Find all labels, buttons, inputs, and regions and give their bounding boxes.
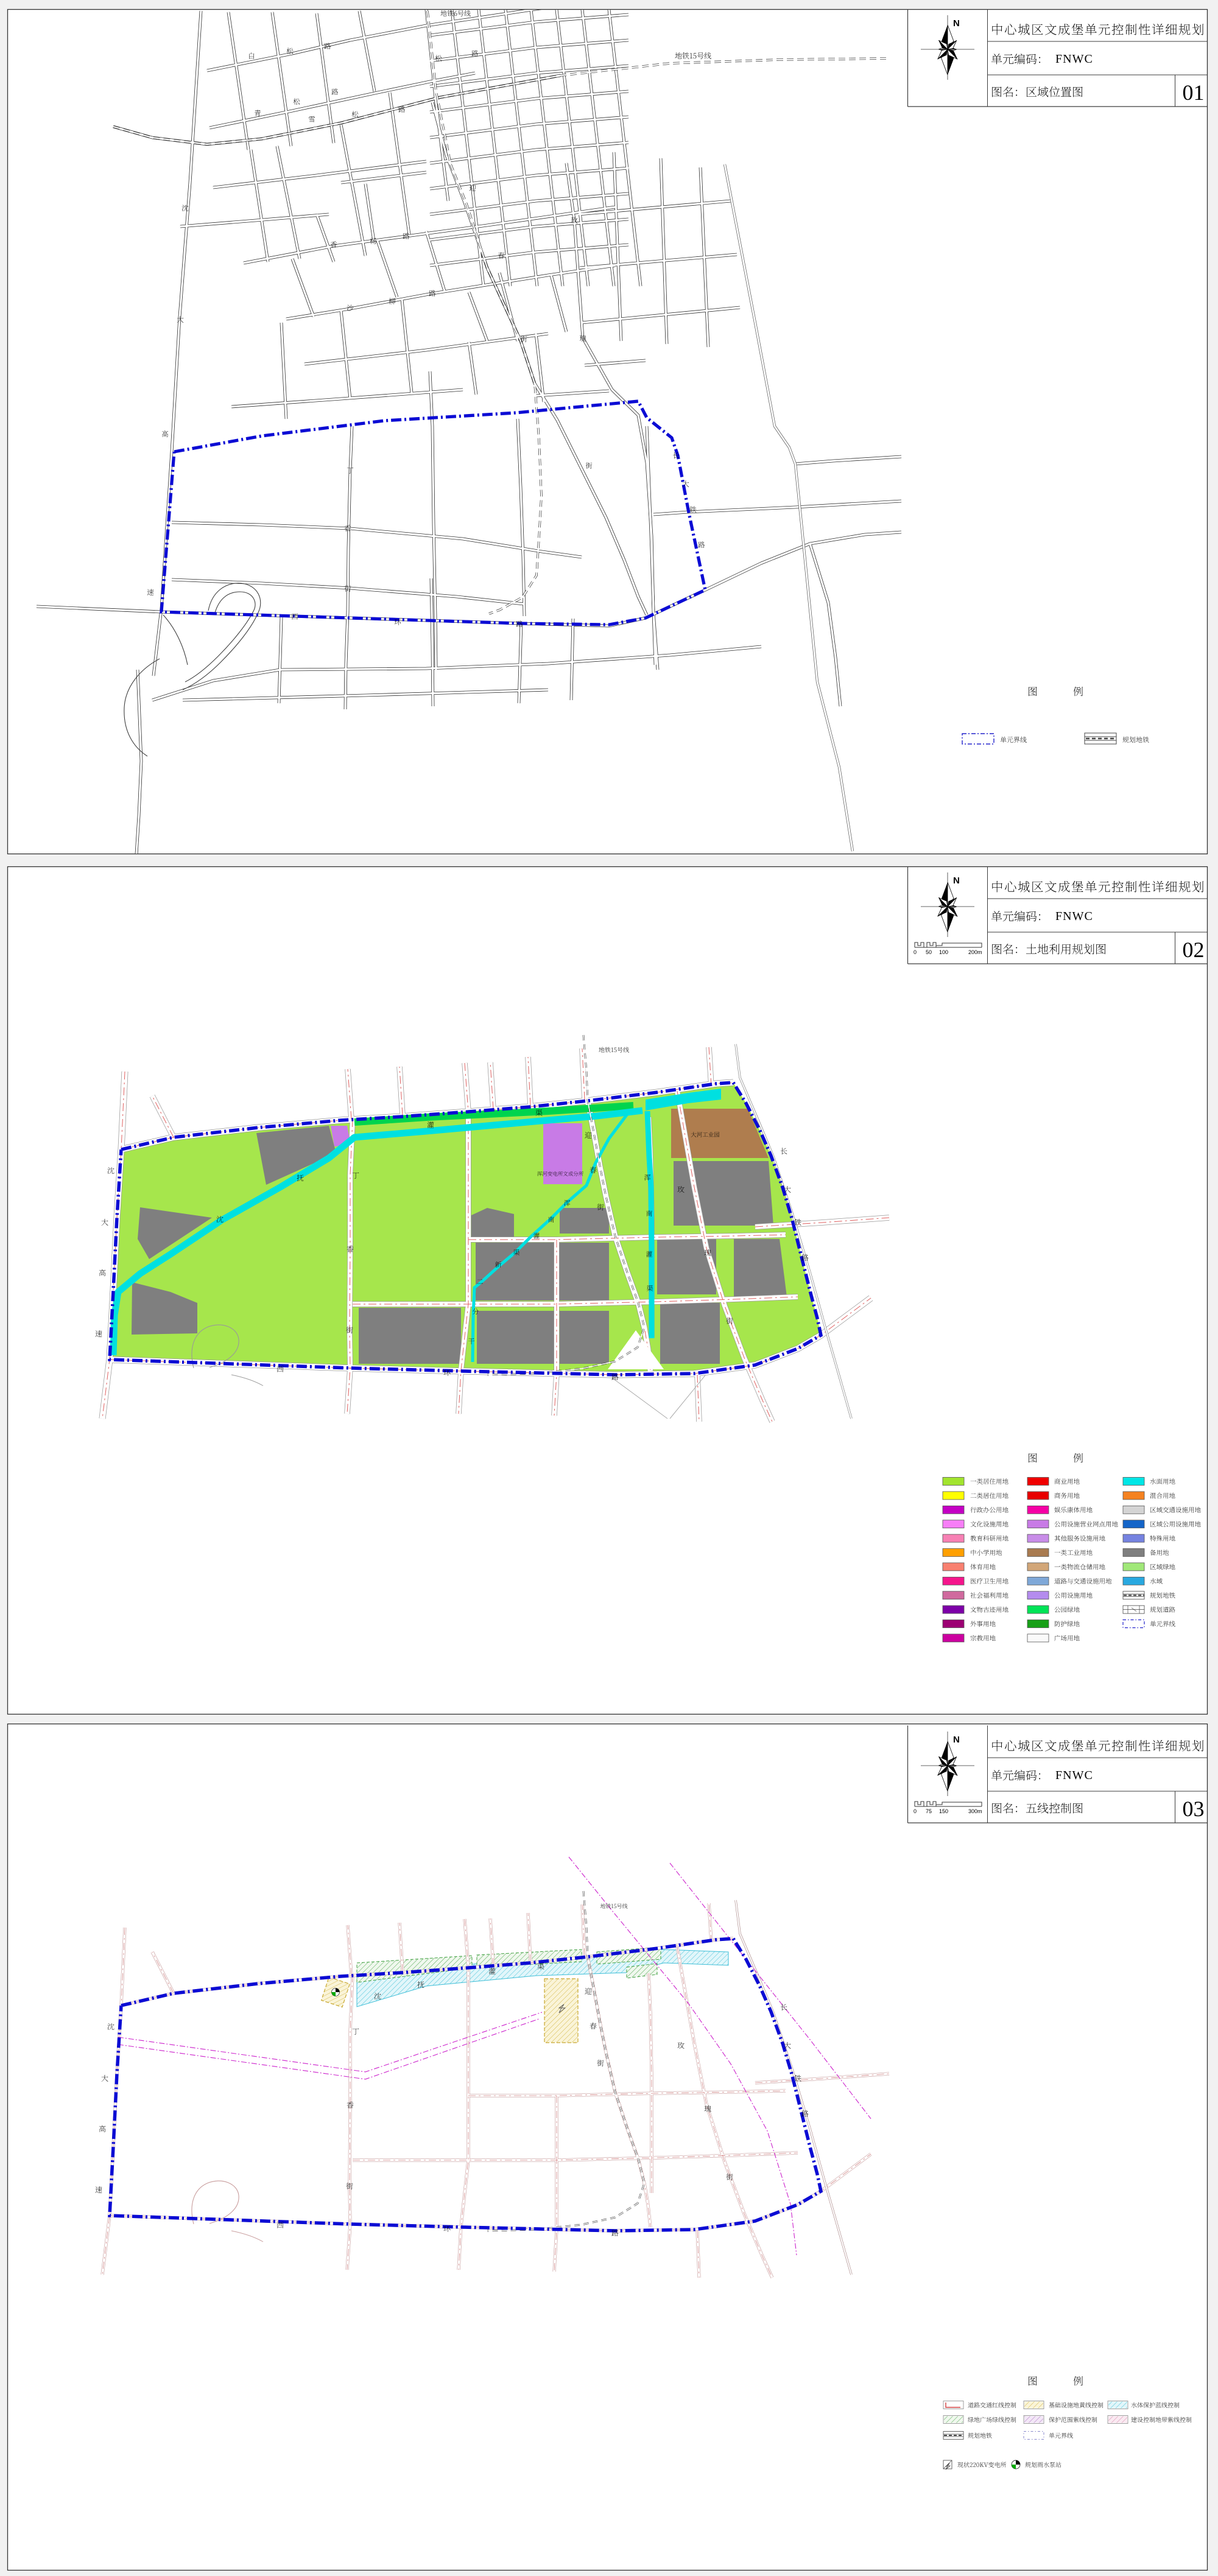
svg-text:03: 03 (1183, 1797, 1205, 1821)
svg-text:FNWC: FNWC (1055, 52, 1093, 66)
svg-text:300m: 300m (968, 1808, 982, 1814)
svg-text:N: N (953, 1735, 960, 1745)
svg-text:100: 100 (939, 949, 948, 955)
svg-text:150: 150 (939, 1808, 948, 1814)
svg-text:FNWC: FNWC (1055, 910, 1093, 923)
svg-text:N: N (953, 18, 960, 29)
svg-text:0: 0 (913, 949, 917, 955)
svg-text:0: 0 (913, 1808, 917, 1814)
svg-text:50: 50 (926, 949, 932, 955)
svg-text:01: 01 (1183, 80, 1205, 105)
svg-text:200m: 200m (968, 949, 982, 955)
svg-text:N: N (953, 876, 960, 886)
svg-text:02: 02 (1183, 938, 1205, 962)
svg-text:75: 75 (926, 1808, 932, 1814)
svg-text:FNWC: FNWC (1055, 1769, 1093, 1782)
